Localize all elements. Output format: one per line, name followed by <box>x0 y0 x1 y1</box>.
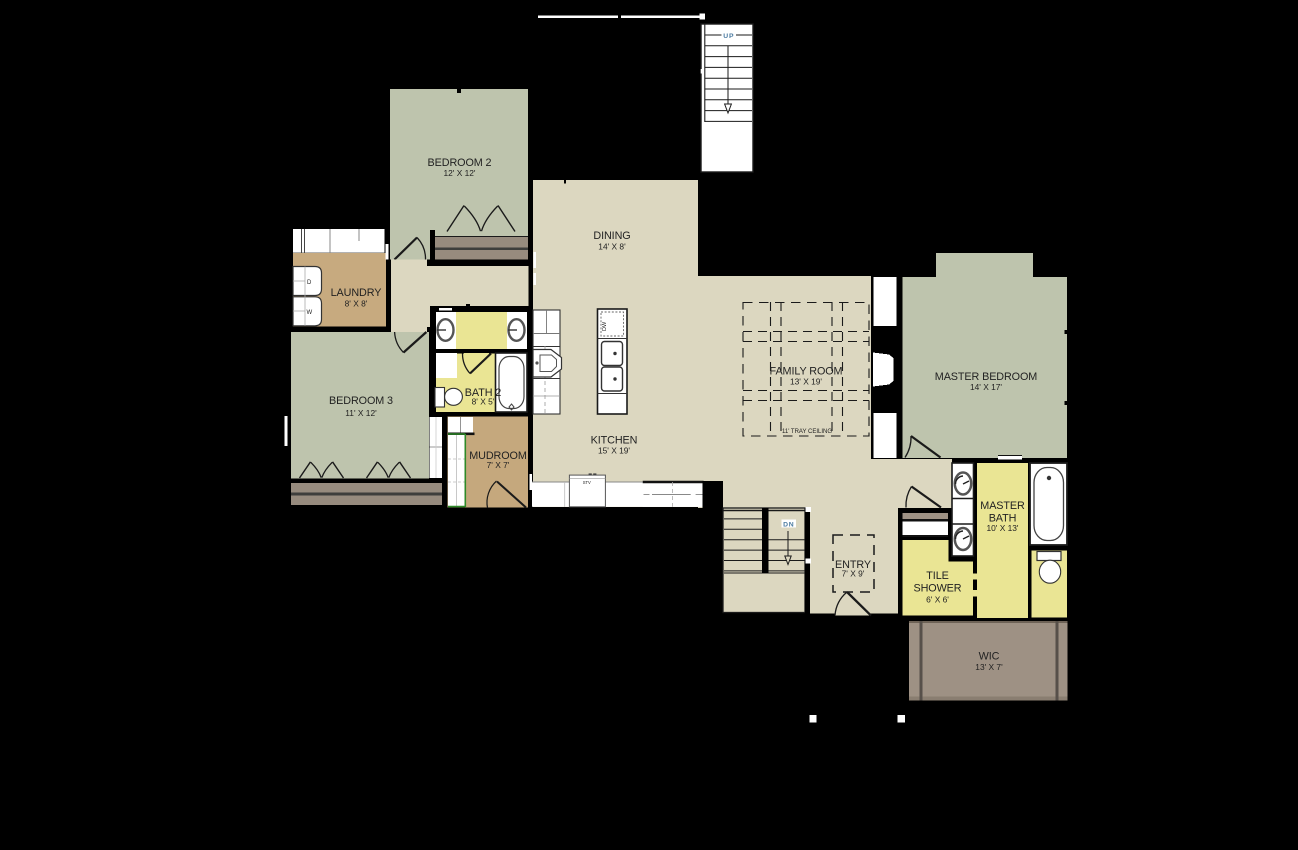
svg-text:W: W <box>307 310 313 316</box>
svg-text:14' X 17': 14' X 17' <box>970 382 1002 392</box>
svg-text:11' X 12': 11' X 12' <box>345 408 377 418</box>
svg-text:15' X 19': 15' X 19' <box>598 446 630 456</box>
svg-text:14' X 8': 14' X 8' <box>598 242 626 252</box>
svg-text:SHOWER: SHOWER <box>914 583 962 595</box>
svg-text:LAUNDRY: LAUNDRY <box>331 287 382 299</box>
svg-text:DN: DN <box>783 521 794 528</box>
svg-text:7' X 9': 7' X 9' <box>842 569 865 579</box>
svg-text:8' X 5': 8' X 5' <box>472 397 495 407</box>
svg-text:6' X 6': 6' X 6' <box>926 595 949 605</box>
svg-text:DW: DW <box>602 321 608 331</box>
svg-text:DINING: DINING <box>593 230 630 242</box>
svg-text:11' TRAY CEILING: 11' TRAY CEILING <box>782 429 832 435</box>
svg-text:D: D <box>307 280 312 286</box>
svg-text:MASTER: MASTER <box>980 500 1025 512</box>
svg-text:13' X 19': 13' X 19' <box>790 377 822 387</box>
svg-text:12' X 12': 12' X 12' <box>443 168 475 178</box>
svg-text:STV: STV <box>583 480 591 485</box>
svg-text:10' X 13': 10' X 13' <box>986 523 1018 533</box>
svg-text:TILE: TILE <box>926 570 948 582</box>
svg-text:BEDROOM 3: BEDROOM 3 <box>329 395 393 407</box>
svg-text:13' X 7': 13' X 7' <box>975 662 1003 672</box>
svg-text:WIC: WIC <box>979 651 1000 663</box>
svg-text:8' X 8': 8' X 8' <box>345 299 368 309</box>
svg-text:7' X 7': 7' X 7' <box>487 460 510 470</box>
svg-text:UP: UP <box>723 33 734 40</box>
